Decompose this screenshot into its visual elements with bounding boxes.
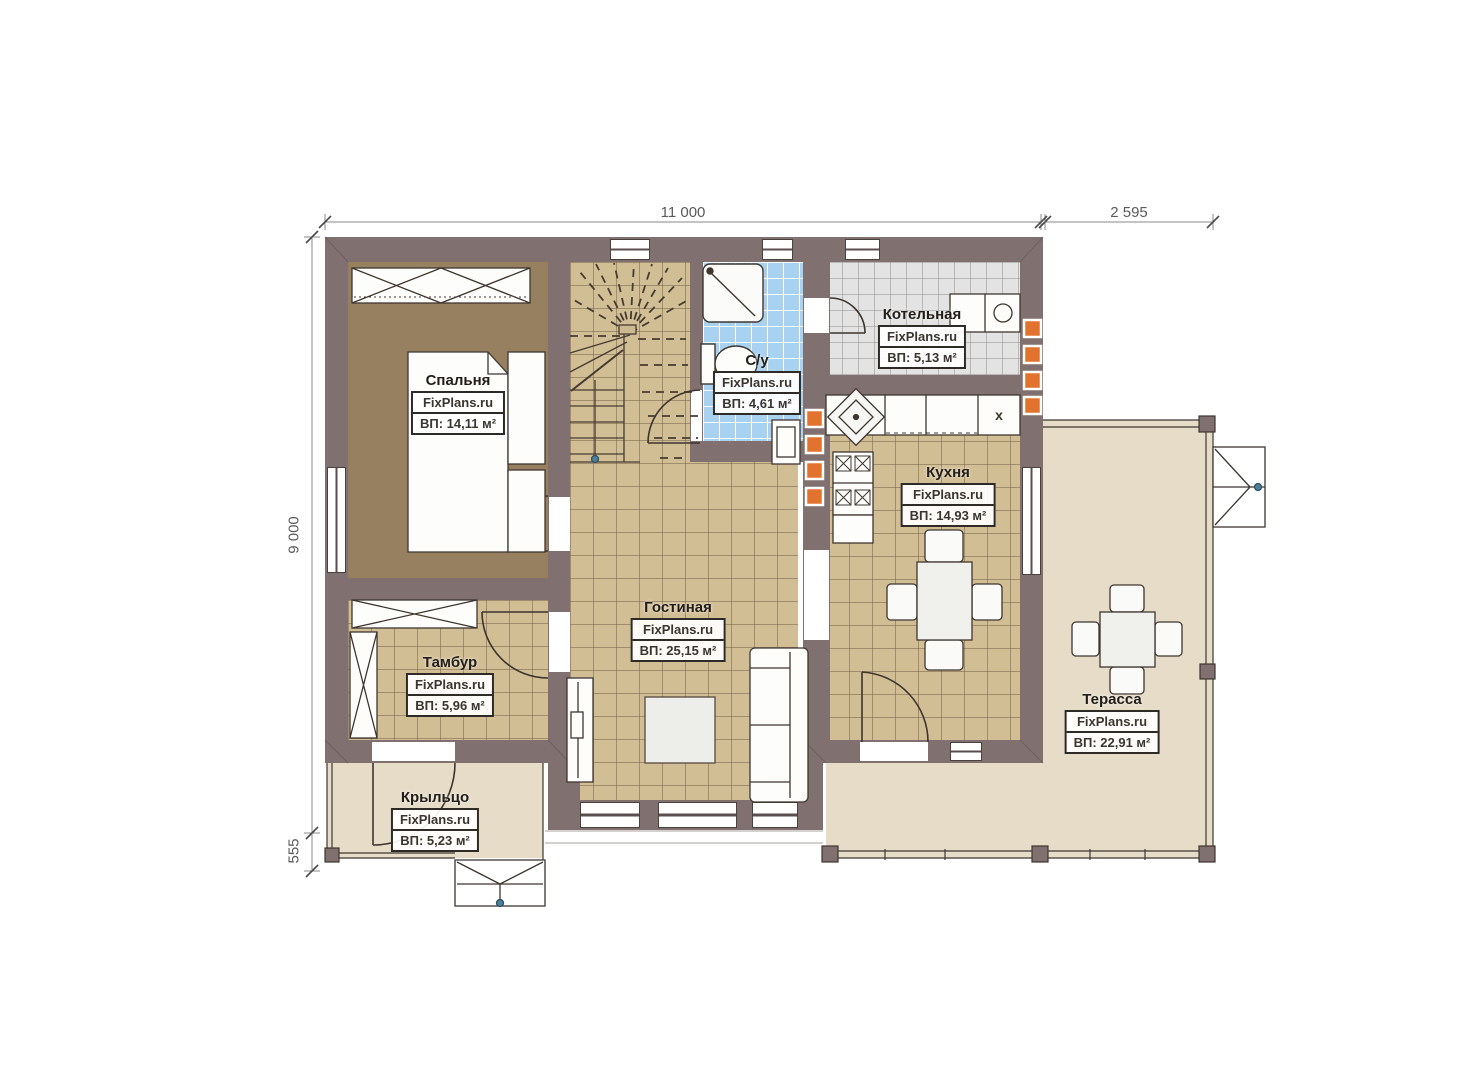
terrace-dining-set — [1072, 585, 1182, 694]
stove — [833, 452, 873, 543]
dimension-left-height: 9 000 — [286, 516, 303, 554]
table — [1100, 612, 1155, 667]
watermark: FixPlans.ru — [633, 620, 724, 639]
chair — [1110, 667, 1144, 694]
sofa — [750, 648, 808, 802]
room-label-terrace: Терасса FixPlans.ru ВП: 22,91 м² — [1065, 691, 1160, 754]
room-name: Кухня — [901, 464, 996, 482]
watermark: FixPlans.ru — [408, 675, 492, 694]
room-area: ВП: 5,23 м² — [393, 829, 477, 850]
chair — [925, 640, 963, 670]
porch-steps — [455, 860, 545, 907]
walkway-edge — [545, 831, 823, 843]
room-name: Тамбур — [406, 654, 494, 672]
nightstand-bottom — [508, 470, 545, 552]
room-area: ВП: 5,13 м² — [880, 346, 964, 367]
room-label-kitchen: Кухня FixPlans.ru ВП: 14,93 м² — [901, 464, 996, 527]
room-label-vestibule: Тамбур FixPlans.ru ВП: 5,96 м² — [406, 654, 494, 717]
room-label-bedroom: Спальня FixPlans.ru ВП: 14,11 м² — [411, 372, 505, 435]
dimension-top-width: 11 000 — [661, 204, 706, 221]
chair — [1110, 585, 1144, 612]
kitchen-dining-set — [887, 530, 1002, 670]
room-name: Крыльцо — [391, 789, 479, 807]
bathroom-sink — [772, 420, 800, 464]
vent-cabinet-label: x — [995, 407, 1003, 423]
watermark: FixPlans.ru — [715, 373, 799, 392]
watermark: FixPlans.ru — [903, 485, 994, 504]
tv-stand — [567, 678, 593, 782]
dimension-porch-height: 555 — [286, 838, 303, 863]
floorplan-graphics: x — [0, 0, 1473, 1080]
watermark: FixPlans.ru — [1067, 712, 1158, 731]
room-name: Котельная — [878, 306, 966, 324]
watermark: FixPlans.ru — [393, 810, 477, 829]
room-name: С/у — [713, 352, 801, 370]
room-label-bathroom: С/у FixPlans.ru ВП: 4,61 м² — [713, 352, 801, 415]
room-area: ВП: 4,61 м² — [715, 392, 799, 413]
chair — [887, 584, 917, 620]
staircase — [570, 263, 698, 463]
chair — [1072, 622, 1099, 656]
room-name: Терасса — [1065, 691, 1160, 709]
dimension-terrace-width: 2 595 — [1110, 204, 1148, 221]
room-area: ВП: 14,93 м² — [903, 504, 994, 525]
room-area: ВП: 25,15 м² — [633, 639, 724, 660]
table — [917, 562, 972, 640]
floor-plan: x — [0, 0, 1473, 1080]
room-label-living: Гостиная FixPlans.ru ВП: 25,15 м² — [631, 599, 726, 662]
nightstand-top — [508, 352, 545, 464]
kitchen-terrace-door — [862, 672, 928, 742]
room-name: Спальня — [411, 372, 505, 390]
chair — [972, 584, 1002, 620]
room-name: Гостиная — [631, 599, 726, 617]
coffee-table — [645, 697, 715, 763]
terrace-steps — [1213, 447, 1265, 527]
room-label-boiler: Котельная FixPlans.ru ВП: 5,13 м² — [878, 306, 966, 369]
room-label-porch: Крыльцо FixPlans.ru ВП: 5,23 м² — [391, 789, 479, 852]
room-area: ВП: 5,96 м² — [408, 694, 492, 715]
watermark: FixPlans.ru — [413, 393, 503, 412]
chair — [925, 530, 963, 562]
boiler-door — [830, 298, 865, 333]
shower — [703, 264, 763, 322]
watermark: FixPlans.ru — [880, 327, 964, 346]
room-area: ВП: 14,11 м² — [413, 412, 503, 433]
bedroom-wardrobe — [352, 268, 530, 303]
room-area: ВП: 22,91 м² — [1067, 731, 1158, 752]
chair — [1155, 622, 1182, 656]
